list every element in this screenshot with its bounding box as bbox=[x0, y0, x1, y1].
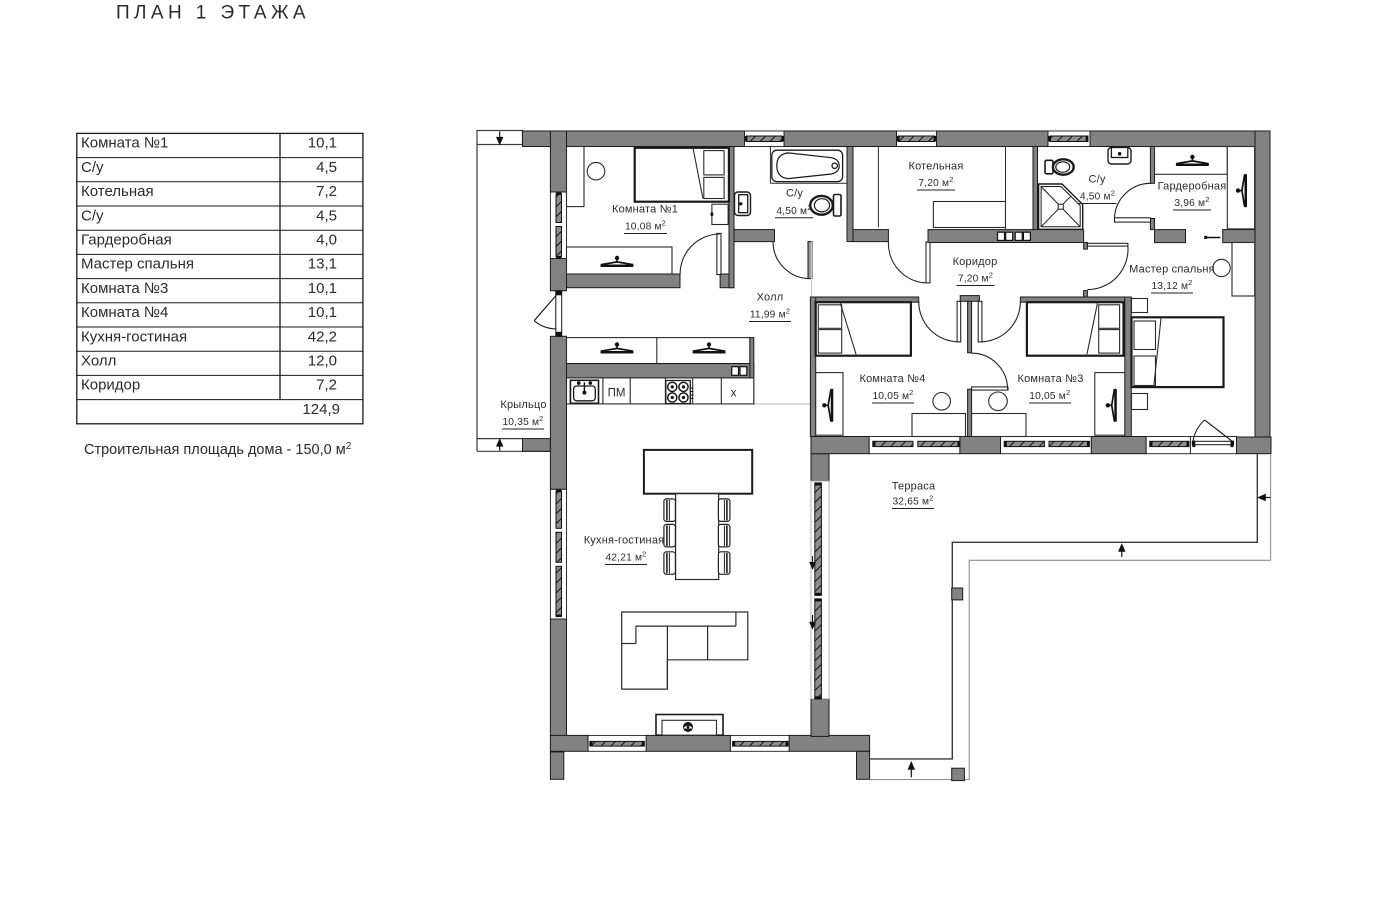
svg-text:Котельная: Котельная bbox=[908, 161, 963, 173]
svg-text:Мастер спальня: Мастер спальня bbox=[1129, 264, 1215, 276]
svg-text:10,05 м2: 10,05 м2 bbox=[1029, 388, 1070, 402]
svg-text:Гардеробная: Гардеробная bbox=[1158, 181, 1227, 193]
svg-text:10,1: 10,1 bbox=[308, 135, 337, 152]
svg-text:7,2: 7,2 bbox=[316, 377, 337, 394]
svg-text:42,21 м2: 42,21 м2 bbox=[605, 550, 646, 564]
svg-text:Холл: Холл bbox=[757, 292, 784, 304]
svg-text:11,99 м2: 11,99 м2 bbox=[750, 307, 790, 321]
svg-text:Котельная: Котельная bbox=[81, 183, 154, 200]
svg-text:10,1: 10,1 bbox=[308, 280, 337, 297]
svg-text:С/у: С/у bbox=[1088, 174, 1105, 186]
svg-text:Комната №3: Комната №3 bbox=[1017, 373, 1083, 385]
svg-text:10,08 м2: 10,08 м2 bbox=[625, 219, 666, 233]
svg-text:Мастер спальня: Мастер спальня bbox=[81, 256, 194, 273]
svg-text:4,0: 4,0 bbox=[316, 232, 337, 249]
svg-text:Строительная площадь дома - 15: Строительная площадь дома - 150,0 м2 bbox=[84, 441, 352, 458]
svg-text:4,5: 4,5 bbox=[316, 207, 337, 224]
svg-text:ПМ: ПМ bbox=[608, 388, 626, 400]
svg-text:42,2: 42,2 bbox=[308, 328, 337, 345]
svg-text:ПЛАН 1 ЭТАЖА: ПЛАН 1 ЭТАЖА bbox=[116, 3, 310, 24]
svg-text:7,20 м2: 7,20 м2 bbox=[918, 175, 953, 189]
svg-text:12,0: 12,0 bbox=[308, 353, 337, 370]
svg-text:Кухня-гостиная: Кухня-гостиная bbox=[584, 535, 665, 547]
svg-text:124,9: 124,9 bbox=[302, 401, 340, 418]
svg-text:Крыльцо: Крыльцо bbox=[500, 399, 546, 411]
svg-text:3,96 м2: 3,96 м2 bbox=[1174, 195, 1209, 209]
svg-text:Комната №3: Комната №3 bbox=[81, 280, 168, 297]
svg-text:Комната №4: Комната №4 bbox=[81, 304, 168, 321]
svg-text:С/у: С/у bbox=[81, 159, 104, 176]
svg-text:Кухня-гостиная: Кухня-гостиная bbox=[81, 328, 187, 345]
svg-text:х: х bbox=[731, 388, 737, 400]
svg-text:7,2: 7,2 bbox=[316, 183, 337, 200]
svg-text:32,65 м2: 32,65 м2 bbox=[892, 494, 933, 508]
svg-text:10,35 м2: 10,35 м2 bbox=[502, 414, 543, 428]
svg-text:13,1: 13,1 bbox=[308, 256, 337, 273]
svg-text:Коридор: Коридор bbox=[81, 377, 140, 394]
svg-text:Холл: Холл bbox=[81, 353, 116, 370]
svg-text:Гардеробная: Гардеробная bbox=[81, 232, 172, 249]
svg-text:Терраса: Терраса bbox=[892, 481, 936, 493]
svg-text:4,5: 4,5 bbox=[316, 159, 337, 176]
svg-text:10,1: 10,1 bbox=[308, 304, 337, 321]
svg-text:4,50 м2: 4,50 м2 bbox=[1080, 189, 1115, 203]
svg-text:С/у: С/у bbox=[786, 187, 803, 199]
svg-text:Комната №1: Комната №1 bbox=[612, 204, 678, 216]
svg-text:4,50 м2: 4,50 м2 bbox=[776, 203, 811, 217]
svg-text:7,20 м2: 7,20 м2 bbox=[958, 271, 993, 285]
svg-text:13,12 м2: 13,12 м2 bbox=[1151, 278, 1192, 292]
svg-text:10,05 м2: 10,05 м2 bbox=[872, 388, 913, 402]
svg-text:Коридор: Коридор bbox=[953, 256, 998, 268]
svg-text:Комната №1: Комната №1 bbox=[81, 135, 168, 152]
svg-text:С/у: С/у bbox=[81, 207, 104, 224]
svg-text:Комната №4: Комната №4 bbox=[859, 373, 925, 385]
